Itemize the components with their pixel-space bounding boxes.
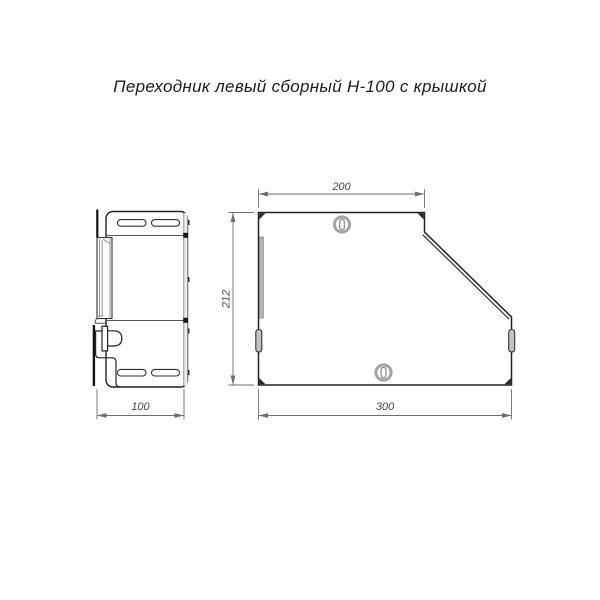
side-latch-tab	[108, 331, 122, 346]
side-edge-tab	[188, 329, 190, 334]
technical-drawing: 200 212 300 100	[0, 0, 600, 600]
front-left-clip	[256, 330, 262, 353]
side-latch-bar	[102, 326, 108, 351]
dimension-300: 300	[259, 389, 512, 420]
screw-slot-icon	[381, 367, 386, 377]
side-hook-detail	[95, 319, 106, 324]
front-body-outline	[259, 213, 512, 386]
screw-slot-icon	[340, 219, 345, 229]
drawing-page: Переходник левый сборный Н-100 с крышкой	[0, 0, 600, 600]
dimension-300-label: 300	[376, 401, 395, 413]
side-slot-hole	[118, 369, 147, 376]
side-view	[94, 210, 190, 388]
front-left-flange	[259, 237, 263, 318]
screw-symbol-bottom	[376, 365, 391, 380]
dimension-200: 200	[259, 181, 425, 208]
side-edge-tab	[188, 220, 190, 225]
side-edge-tab	[188, 277, 190, 282]
side-body-outline	[106, 212, 188, 388]
front-right-clip	[509, 330, 515, 353]
side-slot-hole	[152, 369, 180, 376]
side-weld-mark-mid	[183, 318, 188, 323]
dimension-212-label: 212	[221, 290, 233, 309]
side-weld-mark-top	[183, 233, 188, 238]
dimension-212: 212	[221, 213, 255, 386]
dimension-200-label: 200	[331, 181, 351, 193]
side-edge-tab	[188, 370, 190, 375]
side-right-flange	[184, 213, 188, 386]
dimension-100: 100	[97, 389, 184, 420]
side-slot-hole	[152, 220, 180, 227]
front-view	[256, 213, 515, 386]
screw-symbol-top	[334, 217, 349, 232]
side-slot-hole	[118, 220, 147, 227]
dimension-100-label: 100	[131, 401, 150, 413]
